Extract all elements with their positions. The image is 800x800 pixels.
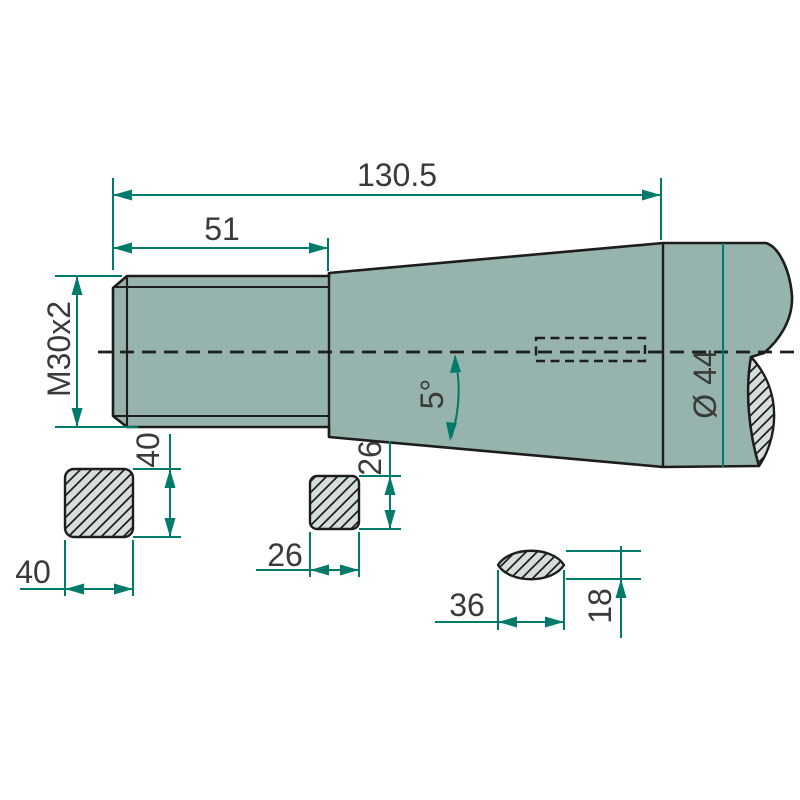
dim-label-lens-height: 18 bbox=[582, 588, 618, 624]
arrowhead-right-icon bbox=[114, 584, 133, 595]
technical-drawing-canvas: 130.5 51 M30x2 5° Ø 44 40 bbox=[0, 0, 800, 800]
arrowhead-right-icon bbox=[642, 190, 661, 201]
dim-thread-length: 51 bbox=[113, 211, 328, 271]
arrowhead-right-icon bbox=[545, 617, 564, 628]
arrowhead-right-icon bbox=[340, 565, 359, 576]
arrowhead-left-icon bbox=[113, 190, 132, 201]
dim-label-lens-width: 36 bbox=[449, 587, 485, 623]
dim-label-overall-length: 130.5 bbox=[357, 157, 437, 193]
dim-label-square2-vertical: 26 bbox=[352, 440, 388, 476]
dim-label-square2-horizontal: 26 bbox=[267, 537, 303, 573]
arrowhead-down-icon bbox=[385, 510, 396, 529]
dim-label-thread-length: 51 bbox=[204, 211, 240, 247]
drawing-svg: 130.5 51 M30x2 5° Ø 44 40 bbox=[0, 0, 800, 800]
dim-label-thread-spec: M30x2 bbox=[41, 301, 77, 397]
cross-section-square-26: 26 26 bbox=[256, 440, 401, 577]
arrowhead-up-icon bbox=[165, 469, 176, 488]
arrowhead-down-icon bbox=[72, 408, 83, 427]
arrowhead-left-icon bbox=[498, 617, 517, 628]
arrowhead-left-icon bbox=[65, 584, 84, 595]
arrowhead-left-icon bbox=[113, 243, 132, 254]
cross-section-lens: 36 18 bbox=[435, 546, 641, 638]
arrowhead-down-icon bbox=[165, 518, 176, 537]
dim-label-square1-vertical: 40 bbox=[130, 432, 166, 468]
dim-label-taper-angle: 5° bbox=[414, 379, 450, 410]
arrowhead-up-icon bbox=[385, 476, 396, 495]
section-shape bbox=[310, 476, 359, 529]
arrowhead-left-icon bbox=[310, 565, 329, 576]
arrowhead-up-icon bbox=[72, 276, 83, 295]
dim-label-shaft-diameter: Ø 44 bbox=[687, 349, 723, 418]
section-shape bbox=[498, 551, 564, 580]
cross-section-square-40: 40 40 bbox=[15, 432, 181, 596]
section-shape bbox=[65, 469, 133, 537]
dim-label-square1-horizontal: 40 bbox=[15, 554, 51, 590]
arrowhead-right-icon bbox=[309, 243, 328, 254]
